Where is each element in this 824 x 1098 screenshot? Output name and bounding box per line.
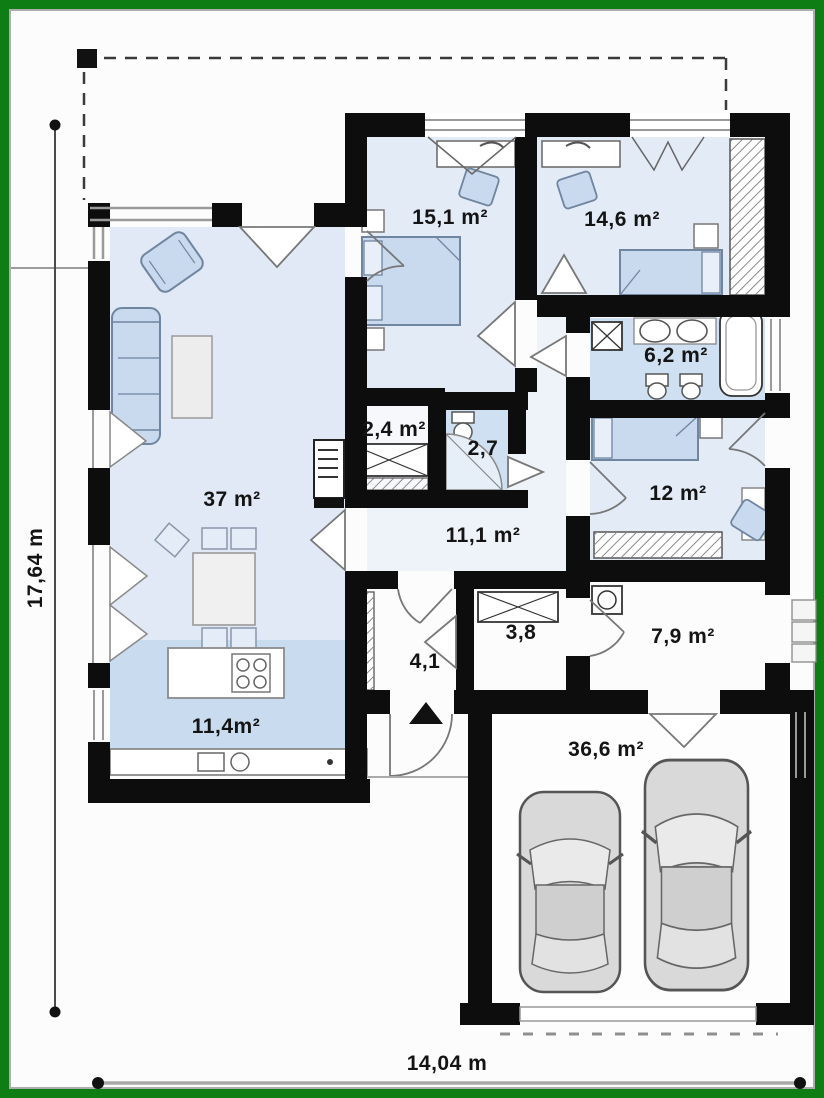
room-label-bedroom3: 12 m² xyxy=(649,482,706,506)
coffee-table xyxy=(172,336,212,418)
exterior-steps xyxy=(792,600,816,662)
room-label-bathroom: 6,2 m² xyxy=(644,344,708,368)
floor-plan-page: 37 m² 11,4m² 15,1 m² 14,6 m² 6,2 m² 2,4 … xyxy=(0,0,824,1098)
room-label-bedroom2: 14,6 m² xyxy=(584,208,660,232)
room-label-hall: 4,1 xyxy=(410,650,441,674)
roof-corner-post xyxy=(77,49,97,68)
dining-table xyxy=(193,553,255,625)
room-label-utility: 7,9 m² xyxy=(651,625,715,649)
floor-plan-drawing xyxy=(0,0,824,1098)
room-label-living: 37 m² xyxy=(203,488,260,512)
room-label-corridor: 11,1 m² xyxy=(446,524,521,548)
car-2 xyxy=(642,760,751,990)
room-label-storage: 3,8 xyxy=(506,621,537,645)
room-label-wc: 2,7 xyxy=(468,437,499,461)
car-1 xyxy=(517,792,623,992)
room-label-garage: 36,6 m² xyxy=(568,738,644,762)
wardrobe xyxy=(730,139,765,295)
wardrobe xyxy=(594,532,722,558)
dimension-label-width: 14,04 m xyxy=(407,1052,488,1076)
room-label-kitchen: 11,4m² xyxy=(192,715,260,739)
dimension-label-height: 17,64 m xyxy=(24,528,48,609)
room-label-bedroom1: 15,1 m² xyxy=(412,206,488,230)
room-label-closet: 2,4 m² xyxy=(362,418,426,442)
